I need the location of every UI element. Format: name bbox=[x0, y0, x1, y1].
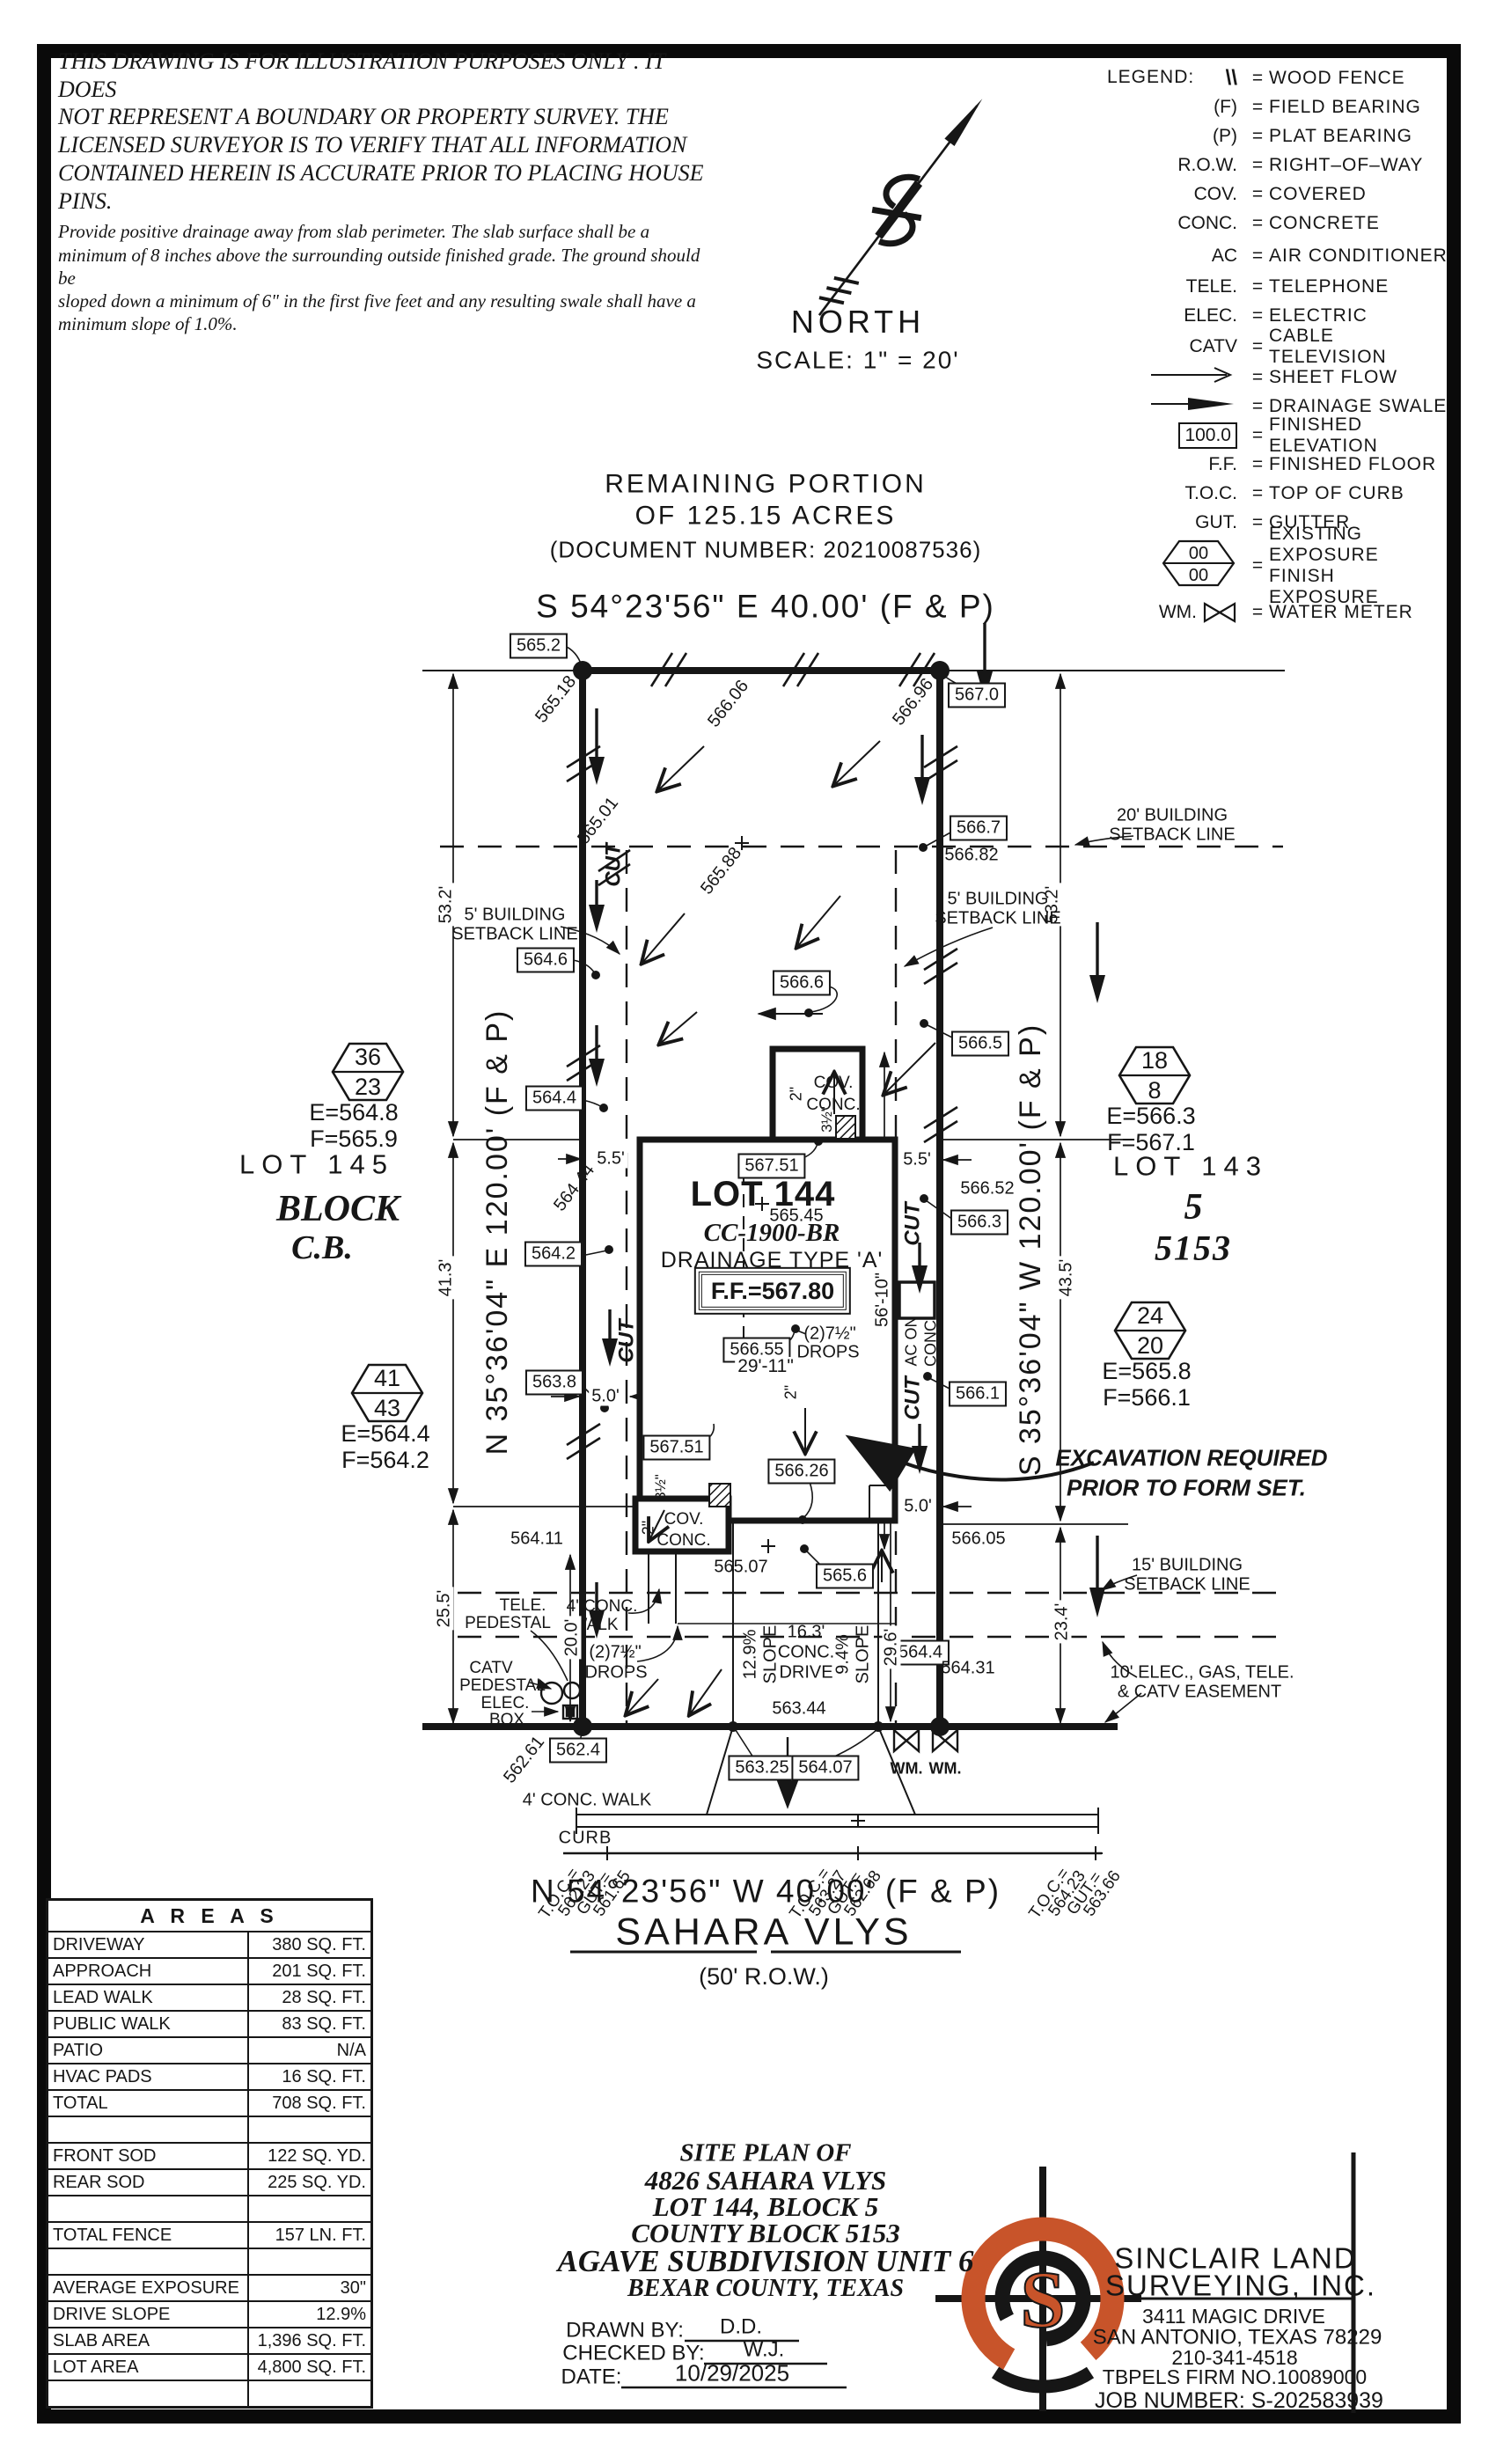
setback-15-label: SETBACK LINE bbox=[1124, 1576, 1250, 1595]
spot-elevation: 563.44 bbox=[772, 1700, 825, 1719]
street-name: SAHARA VLYS bbox=[615, 1912, 912, 1952]
legend-row: TELE.=TELEPHONE bbox=[1107, 272, 1450, 301]
disclaimer-line: NOT REPRESENT A BOUNDARY OR PROPERTY SUR… bbox=[58, 103, 718, 131]
spot-elevation: 565.07 bbox=[714, 1558, 767, 1577]
elevation-box: 564.07 bbox=[791, 1756, 859, 1781]
legend-desc: FINISHED ELEVATION bbox=[1269, 414, 1450, 457]
legend-row: =SHEET FLOW bbox=[1107, 363, 1450, 392]
elevation-box: 565.6 bbox=[816, 1564, 874, 1589]
areas-row: PUBLIC WALK83 SQ. FT. bbox=[48, 2011, 370, 2037]
easement-label: & CATV EASEMENT bbox=[1118, 1683, 1281, 1702]
ac-symbol: AC bbox=[1107, 246, 1246, 267]
document-number: (DOCUMENT NUMBER: 20210087536) bbox=[550, 538, 981, 561]
legend-desc: FIELD BEARING bbox=[1269, 97, 1450, 118]
exposure-existing: E=564.8 bbox=[309, 1100, 398, 1125]
covered-symbol: COV. bbox=[1107, 184, 1246, 205]
elevation-box: 562.4 bbox=[549, 1738, 607, 1764]
legend-row: F.F.=FINISHED FLOOR bbox=[1107, 450, 1450, 479]
bearing-right: S 35°36'04" W 120.00' (F & P) bbox=[1016, 1023, 1047, 1476]
setback-20-label: 20' BUILDING bbox=[1117, 807, 1228, 825]
areas-row: TOTAL FENCE157 LN. FT. bbox=[48, 2222, 370, 2248]
exposure-finish: F=564.2 bbox=[341, 1448, 429, 1472]
elevation-box: 567.51 bbox=[642, 1435, 710, 1461]
disclaimer-note: THIS DRAWING IS FOR ILLUSTRATION PURPOSE… bbox=[58, 48, 718, 336]
step-height-label: 2" bbox=[788, 1087, 805, 1101]
exposure-existing: E=564.4 bbox=[341, 1421, 429, 1446]
firm-address: SAN ANTONIO, TEXAS 78229 bbox=[1093, 2326, 1382, 2348]
drainage-note-line: sloped down a minimum of 6" in the first… bbox=[58, 290, 718, 312]
elevation-box: 563.25 bbox=[728, 1756, 796, 1781]
spot-elevation: 564.11 bbox=[510, 1530, 563, 1549]
drive-label: 16.3' bbox=[788, 1624, 825, 1642]
wm-symbol: WM. bbox=[1159, 602, 1197, 623]
exposure-hexagon-icon: 0000 bbox=[1107, 536, 1246, 596]
hex-finish-exposure: 8 bbox=[1148, 1077, 1161, 1104]
dimension-label: 25.5' bbox=[436, 1588, 454, 1631]
plan-model: CC-1900-BR bbox=[704, 1220, 840, 1246]
dimension-label: 43.5' bbox=[1058, 1257, 1076, 1300]
checked-by-value: W.J. bbox=[744, 2338, 785, 2360]
equals: = bbox=[1246, 454, 1269, 475]
hex-existing-exposure: 18 bbox=[1141, 1047, 1168, 1074]
areas-row: APPROACH201 SQ. FT. bbox=[48, 1958, 370, 1984]
exposure-finish: F=565.9 bbox=[310, 1126, 398, 1151]
title-county: BEXAR COUNTY, TEXAS bbox=[627, 2275, 904, 2303]
site-plan-sheet: 3623 4143 188 2420 S THIS DRAWING IS FOR… bbox=[0, 0, 1496, 2464]
legend-desc: WATER METER bbox=[1269, 602, 1450, 623]
spot-elevation: 566.82 bbox=[944, 847, 998, 865]
catv-pedestal-label: PEDESTAL bbox=[459, 1677, 546, 1695]
remaining-portion-line1: REMAINING PORTION bbox=[605, 470, 926, 498]
cut-label: CUT bbox=[901, 1202, 923, 1245]
sheet-flow-icon bbox=[1107, 366, 1246, 389]
elevation-box: 563.8 bbox=[525, 1370, 583, 1396]
legend-desc: RIGHT–OF–WAY bbox=[1269, 155, 1450, 176]
exposure-existing: E=565.8 bbox=[1102, 1359, 1191, 1383]
equals: = bbox=[1246, 425, 1269, 446]
covered-concrete-label: COV. bbox=[814, 1074, 854, 1092]
drive-slope-label: 12.9% bbox=[742, 1630, 760, 1680]
water-meter-label: WM. bbox=[929, 1761, 962, 1778]
areas-row bbox=[48, 2248, 370, 2275]
legend-row: AC=AIR CONDITIONER bbox=[1107, 241, 1450, 270]
legend-desc: EXISTING EXPOSURE bbox=[1269, 524, 1450, 566]
firm-tbpels: TBPELS FIRM NO.10089000 bbox=[1103, 2366, 1367, 2387]
hex-finish-exposure: 43 bbox=[374, 1395, 400, 1421]
dimension-label: 5.0' bbox=[589, 1388, 622, 1406]
finished-floor-elevation: F.F.=567.80 bbox=[699, 1272, 847, 1310]
areas-row: DRIVEWAY380 SQ. FT. bbox=[48, 1932, 370, 1958]
areas-row: FRONT SOD122 SQ. YD. bbox=[48, 2143, 370, 2169]
bearing-top: S 54°23'56" E 40.00' (F & P) bbox=[536, 590, 995, 625]
equals: = bbox=[1246, 512, 1269, 533]
legend-desc: TOP OF CURB bbox=[1269, 483, 1450, 504]
neighbor-block-left: BLOCK bbox=[276, 1188, 400, 1230]
equals: = bbox=[1246, 602, 1269, 623]
covered-concrete-label: COV. bbox=[664, 1511, 704, 1529]
areas-row bbox=[48, 2380, 370, 2406]
dimension-label: 29'-11" bbox=[735, 1357, 796, 1376]
curb-label: CURB bbox=[559, 1830, 612, 1848]
equals: = bbox=[1246, 184, 1269, 205]
areas-row bbox=[48, 2116, 370, 2143]
tele-symbol: TELE. bbox=[1107, 276, 1246, 297]
setback-5-label: SETBACK LINE bbox=[451, 926, 577, 944]
dimension-label: 20.0' bbox=[563, 1617, 582, 1660]
drops-label: DROPS bbox=[796, 1344, 859, 1362]
lead-walk-label: 4' CONC. bbox=[567, 1598, 638, 1616]
disclaimer-line: THIS DRAWING IS FOR ILLUSTRATION PURPOSE… bbox=[58, 48, 718, 103]
elec-box-label: BOX bbox=[489, 1712, 524, 1729]
neighbor-cb-left: C.B. bbox=[291, 1228, 353, 1267]
hex-finish-exposure: 20 bbox=[1137, 1332, 1163, 1359]
spot-elevation: 566.52 bbox=[960, 1180, 1014, 1199]
areas-row: DRIVE SLOPE12.9% bbox=[48, 2301, 370, 2328]
tele-pedestal-label: PEDESTAL bbox=[465, 1615, 551, 1632]
drops-label: (2)7½" bbox=[803, 1325, 855, 1344]
drive-slope-label: 9.4% bbox=[834, 1634, 853, 1675]
dimension-label: 5.5' bbox=[900, 1151, 934, 1170]
water-meter-icon bbox=[1202, 601, 1237, 624]
spot-elevation: 564.31 bbox=[941, 1660, 994, 1678]
setback-5-label: 5' BUILDING bbox=[948, 891, 1049, 909]
dimension-label: 5.5' bbox=[594, 1150, 627, 1169]
legend-row: 100.0=FINISHED ELEVATION bbox=[1107, 421, 1450, 450]
areas-row: SLAB AREA1,396 SQ. FT. bbox=[48, 2328, 370, 2354]
elec-symbol: ELEC. bbox=[1107, 305, 1246, 326]
drive-label: CONC. bbox=[778, 1644, 834, 1662]
equals: = bbox=[1246, 155, 1269, 176]
equals: = bbox=[1246, 68, 1269, 89]
cut-label: CUT bbox=[602, 843, 624, 886]
neighbor-lot-right: LOT 143 bbox=[1113, 1153, 1268, 1182]
toc-symbol: T.O.C. bbox=[1107, 483, 1246, 504]
excavation-note: PRIOR TO FORM SET. bbox=[1067, 1476, 1306, 1500]
exposure-finish: F=566.1 bbox=[1103, 1385, 1191, 1410]
gutter-symbol: GUT. bbox=[1107, 512, 1246, 533]
north-label: NORTH bbox=[791, 305, 925, 339]
exposure-top: 00 bbox=[1189, 544, 1208, 563]
legend-row: T.O.C.=TOP OF CURB bbox=[1107, 479, 1450, 508]
elevation-box: 566.26 bbox=[767, 1459, 835, 1485]
legend-desc: PLAT BEARING bbox=[1269, 126, 1450, 147]
field-bearing-symbol: (F) bbox=[1107, 97, 1246, 118]
dimension-label: 56'-10" bbox=[874, 1270, 892, 1330]
covered-concrete-label: CONC. bbox=[656, 1532, 710, 1550]
firm-name: SURVEYING, INC. bbox=[1105, 2271, 1376, 2302]
date-value: 10/29/2025 bbox=[675, 2361, 789, 2385]
hex-finish-exposure: 23 bbox=[355, 1074, 381, 1100]
elevation-box: 566.6 bbox=[773, 971, 831, 996]
step-height-label: 2" bbox=[641, 1521, 657, 1535]
dimension-label: 5.0' bbox=[901, 1498, 935, 1516]
areas-row: REAR SOD225 SQ. YD. bbox=[48, 2169, 370, 2196]
disclaimer-line: LICENSED SURVEYOR IS TO VERIFY THAT ALL … bbox=[58, 131, 718, 159]
legend: LEGEND: \\=WOOD FENCE (F)=FIELD BEARING … bbox=[1107, 63, 1450, 630]
legend-row: CATV=CABLE TELEVISION bbox=[1107, 332, 1450, 361]
spot-elevation: 566.05 bbox=[951, 1530, 1005, 1549]
ac-label: AC ON bbox=[904, 1316, 920, 1366]
drainage-swale-icon bbox=[1107, 395, 1246, 418]
dimension-label: 53.2' bbox=[437, 884, 456, 927]
public-walk-label: 4' CONC. WALK bbox=[523, 1792, 651, 1810]
bearing-bottom: N 54°23'56" W 40.00' (F & P) bbox=[531, 1875, 1001, 1910]
job-number: JOB NUMBER: S-202583939 bbox=[1095, 2389, 1383, 2412]
remaining-portion-line2: OF 125.15 ACRES bbox=[635, 502, 897, 530]
equals: = bbox=[1246, 483, 1269, 504]
drainage-note-line: Provide positive drainage away from slab… bbox=[58, 220, 718, 243]
elevation-box: 565.2 bbox=[510, 634, 568, 659]
elec-box-label: ELEC. bbox=[481, 1695, 530, 1712]
equals: = bbox=[1246, 555, 1269, 576]
elevation-box: 564.4 bbox=[525, 1086, 583, 1111]
drive-slope-label: SLOPE bbox=[854, 1625, 873, 1684]
neighbor-lot-left: LOT 145 bbox=[239, 1151, 394, 1180]
drainage-note-line: minimum slope of 1.0%. bbox=[58, 312, 718, 335]
equals: = bbox=[1246, 246, 1269, 267]
ff-symbol: F.F. bbox=[1107, 454, 1246, 475]
exposure-bottom: 00 bbox=[1189, 566, 1208, 585]
drop-height-label: 3½" bbox=[819, 1106, 835, 1133]
scale-label: SCALE: 1" = 20' bbox=[756, 347, 959, 372]
drainage-type: DRAINAGE TYPE 'A' bbox=[661, 1249, 884, 1272]
equals: = bbox=[1246, 367, 1269, 388]
equals: = bbox=[1246, 396, 1269, 417]
hex-existing-exposure: 24 bbox=[1137, 1302, 1163, 1329]
elevation-box: 566.3 bbox=[950, 1210, 1008, 1236]
legend-desc: FINISHED FLOOR bbox=[1269, 454, 1450, 475]
areas-row: PATION/A bbox=[48, 2037, 370, 2064]
elevation-box: 567.0 bbox=[948, 683, 1006, 708]
areas-row: AVERAGE EXPOSURE30" bbox=[48, 2275, 370, 2301]
equals: = bbox=[1246, 305, 1269, 326]
legend-desc: AIR CONDITIONER bbox=[1269, 246, 1450, 267]
legend-row: (P)=PLAT BEARING bbox=[1107, 121, 1450, 150]
cut-label: CUT bbox=[615, 1319, 637, 1362]
date-label: DATE: bbox=[561, 2365, 622, 2387]
areas-row: TOTAL708 SQ. FT. bbox=[48, 2090, 370, 2116]
areas-title: A R E A S bbox=[48, 1901, 370, 1932]
legend-desc: COVERED bbox=[1269, 184, 1450, 205]
title-line: SITE PLAN OF bbox=[680, 2139, 852, 2168]
setback-5-label: SETBACK LINE bbox=[935, 910, 1060, 928]
cut-label: CUT bbox=[901, 1376, 923, 1419]
legend-row: 0000=EXISTING EXPOSUREFINISH EXPOSURE bbox=[1107, 537, 1450, 595]
exposure-finish: F=567.1 bbox=[1107, 1130, 1195, 1155]
street-row: (50' R.O.W.) bbox=[699, 1964, 829, 1989]
elevation-box: 566.1 bbox=[949, 1382, 1007, 1407]
legend-desc: ELECTRIC bbox=[1269, 305, 1450, 326]
easement-label: 10' ELEC., GAS, TELE. bbox=[1110, 1664, 1294, 1683]
elevation-box: 566.5 bbox=[951, 1031, 1009, 1057]
legend-desc: CONCRETE bbox=[1269, 213, 1450, 234]
drive-label: DRIVE bbox=[779, 1664, 832, 1683]
drawn-by-label: DRAWN BY: bbox=[566, 2319, 684, 2341]
legend-desc: SHEET FLOW bbox=[1269, 367, 1450, 388]
legend-row: CONC.=CONCRETE bbox=[1107, 209, 1450, 238]
excavation-note: EXCAVATION REQUIRED bbox=[1055, 1446, 1327, 1470]
ac-label: CONC. bbox=[923, 1316, 940, 1367]
legend-desc: WOOD FENCE bbox=[1269, 68, 1450, 89]
equals: = bbox=[1246, 336, 1269, 357]
areas-row: LEAD WALK28 SQ. FT. bbox=[48, 1984, 370, 2011]
legend-row: COV.=COVERED bbox=[1107, 180, 1450, 209]
equals: = bbox=[1246, 97, 1269, 118]
legend-title: LEGEND: bbox=[1107, 67, 1194, 88]
water-meter-label: WM. bbox=[891, 1761, 923, 1778]
hex-existing-exposure: 36 bbox=[355, 1044, 381, 1070]
legend-desc: TELEPHONE bbox=[1269, 276, 1450, 297]
drops-label: DROPS bbox=[584, 1664, 647, 1683]
row-symbol: R.O.W. bbox=[1107, 155, 1246, 176]
setback-20-label: SETBACK LINE bbox=[1109, 826, 1235, 845]
catv-symbol: CATV bbox=[1107, 336, 1246, 357]
disclaimer-line: CONTAINED HEREIN IS ACCURATE PRIOR TO PL… bbox=[58, 159, 718, 215]
areas-table: A R E A S DRIVEWAY380 SQ. FT. APPROACH20… bbox=[46, 1898, 373, 2409]
catv-pedestal-label: CATV bbox=[469, 1660, 512, 1677]
drops-label: (2)7½" bbox=[589, 1644, 641, 1662]
step-height-label: 2" bbox=[783, 1385, 800, 1399]
equals: = bbox=[1246, 126, 1269, 147]
drawn-by-value: D.D. bbox=[720, 2315, 762, 2337]
drainage-note-line: minimum of 8 inches above the surroundin… bbox=[58, 244, 718, 290]
tele-pedestal-label: TELE. bbox=[500, 1597, 546, 1615]
setback-5-label: 5' BUILDING bbox=[465, 906, 566, 925]
legend-row: (F)=FIELD BEARING bbox=[1107, 92, 1450, 121]
hex-existing-exposure: 41 bbox=[374, 1365, 400, 1391]
equals: = bbox=[1246, 213, 1269, 234]
north-arrow-icon bbox=[802, 85, 1001, 329]
elevation-box: 566.7 bbox=[950, 816, 1008, 841]
legend-desc: CABLE TELEVISION bbox=[1269, 326, 1450, 368]
logo-letter: S bbox=[1020, 2255, 1065, 2344]
areas-row: LOT AREA4,800 SQ. FT. bbox=[48, 2354, 370, 2380]
dimension-label: 23.4' bbox=[1053, 1601, 1072, 1644]
elevation-box: 564.2 bbox=[524, 1242, 583, 1267]
setback-15-label: 15' BUILDING bbox=[1132, 1557, 1243, 1575]
exposure-existing: E=566.3 bbox=[1106, 1104, 1195, 1128]
dimension-label: 41.3' bbox=[437, 1257, 456, 1300]
bearing-left: N 35°36'04" E 120.00' (F & P) bbox=[482, 1009, 514, 1456]
dimension-label: 29.6' bbox=[883, 1626, 901, 1669]
plat-bearing-symbol: (P) bbox=[1107, 126, 1246, 147]
neighbor-cb-right: 5153 bbox=[1155, 1228, 1232, 1269]
elevation-box: 564.6 bbox=[517, 948, 575, 973]
firm-address: 3411 MAGIC DRIVE bbox=[1142, 2306, 1325, 2327]
legend-row: R.O.W.=RIGHT–OF–WAY bbox=[1107, 150, 1450, 180]
drop-height-label: 3½" bbox=[653, 1474, 669, 1500]
areas-row: HVAC PADS16 SQ. FT. bbox=[48, 2064, 370, 2090]
concrete-symbol: CONC. bbox=[1107, 213, 1246, 234]
finished-elevation-symbol: 100.0 bbox=[1178, 422, 1237, 449]
areas-row bbox=[48, 2196, 370, 2222]
neighbor-block-right: 5 bbox=[1184, 1186, 1203, 1228]
title-subdivision: AGAVE SUBDIVISION UNIT 6 bbox=[558, 2244, 974, 2279]
equals: = bbox=[1246, 276, 1269, 297]
